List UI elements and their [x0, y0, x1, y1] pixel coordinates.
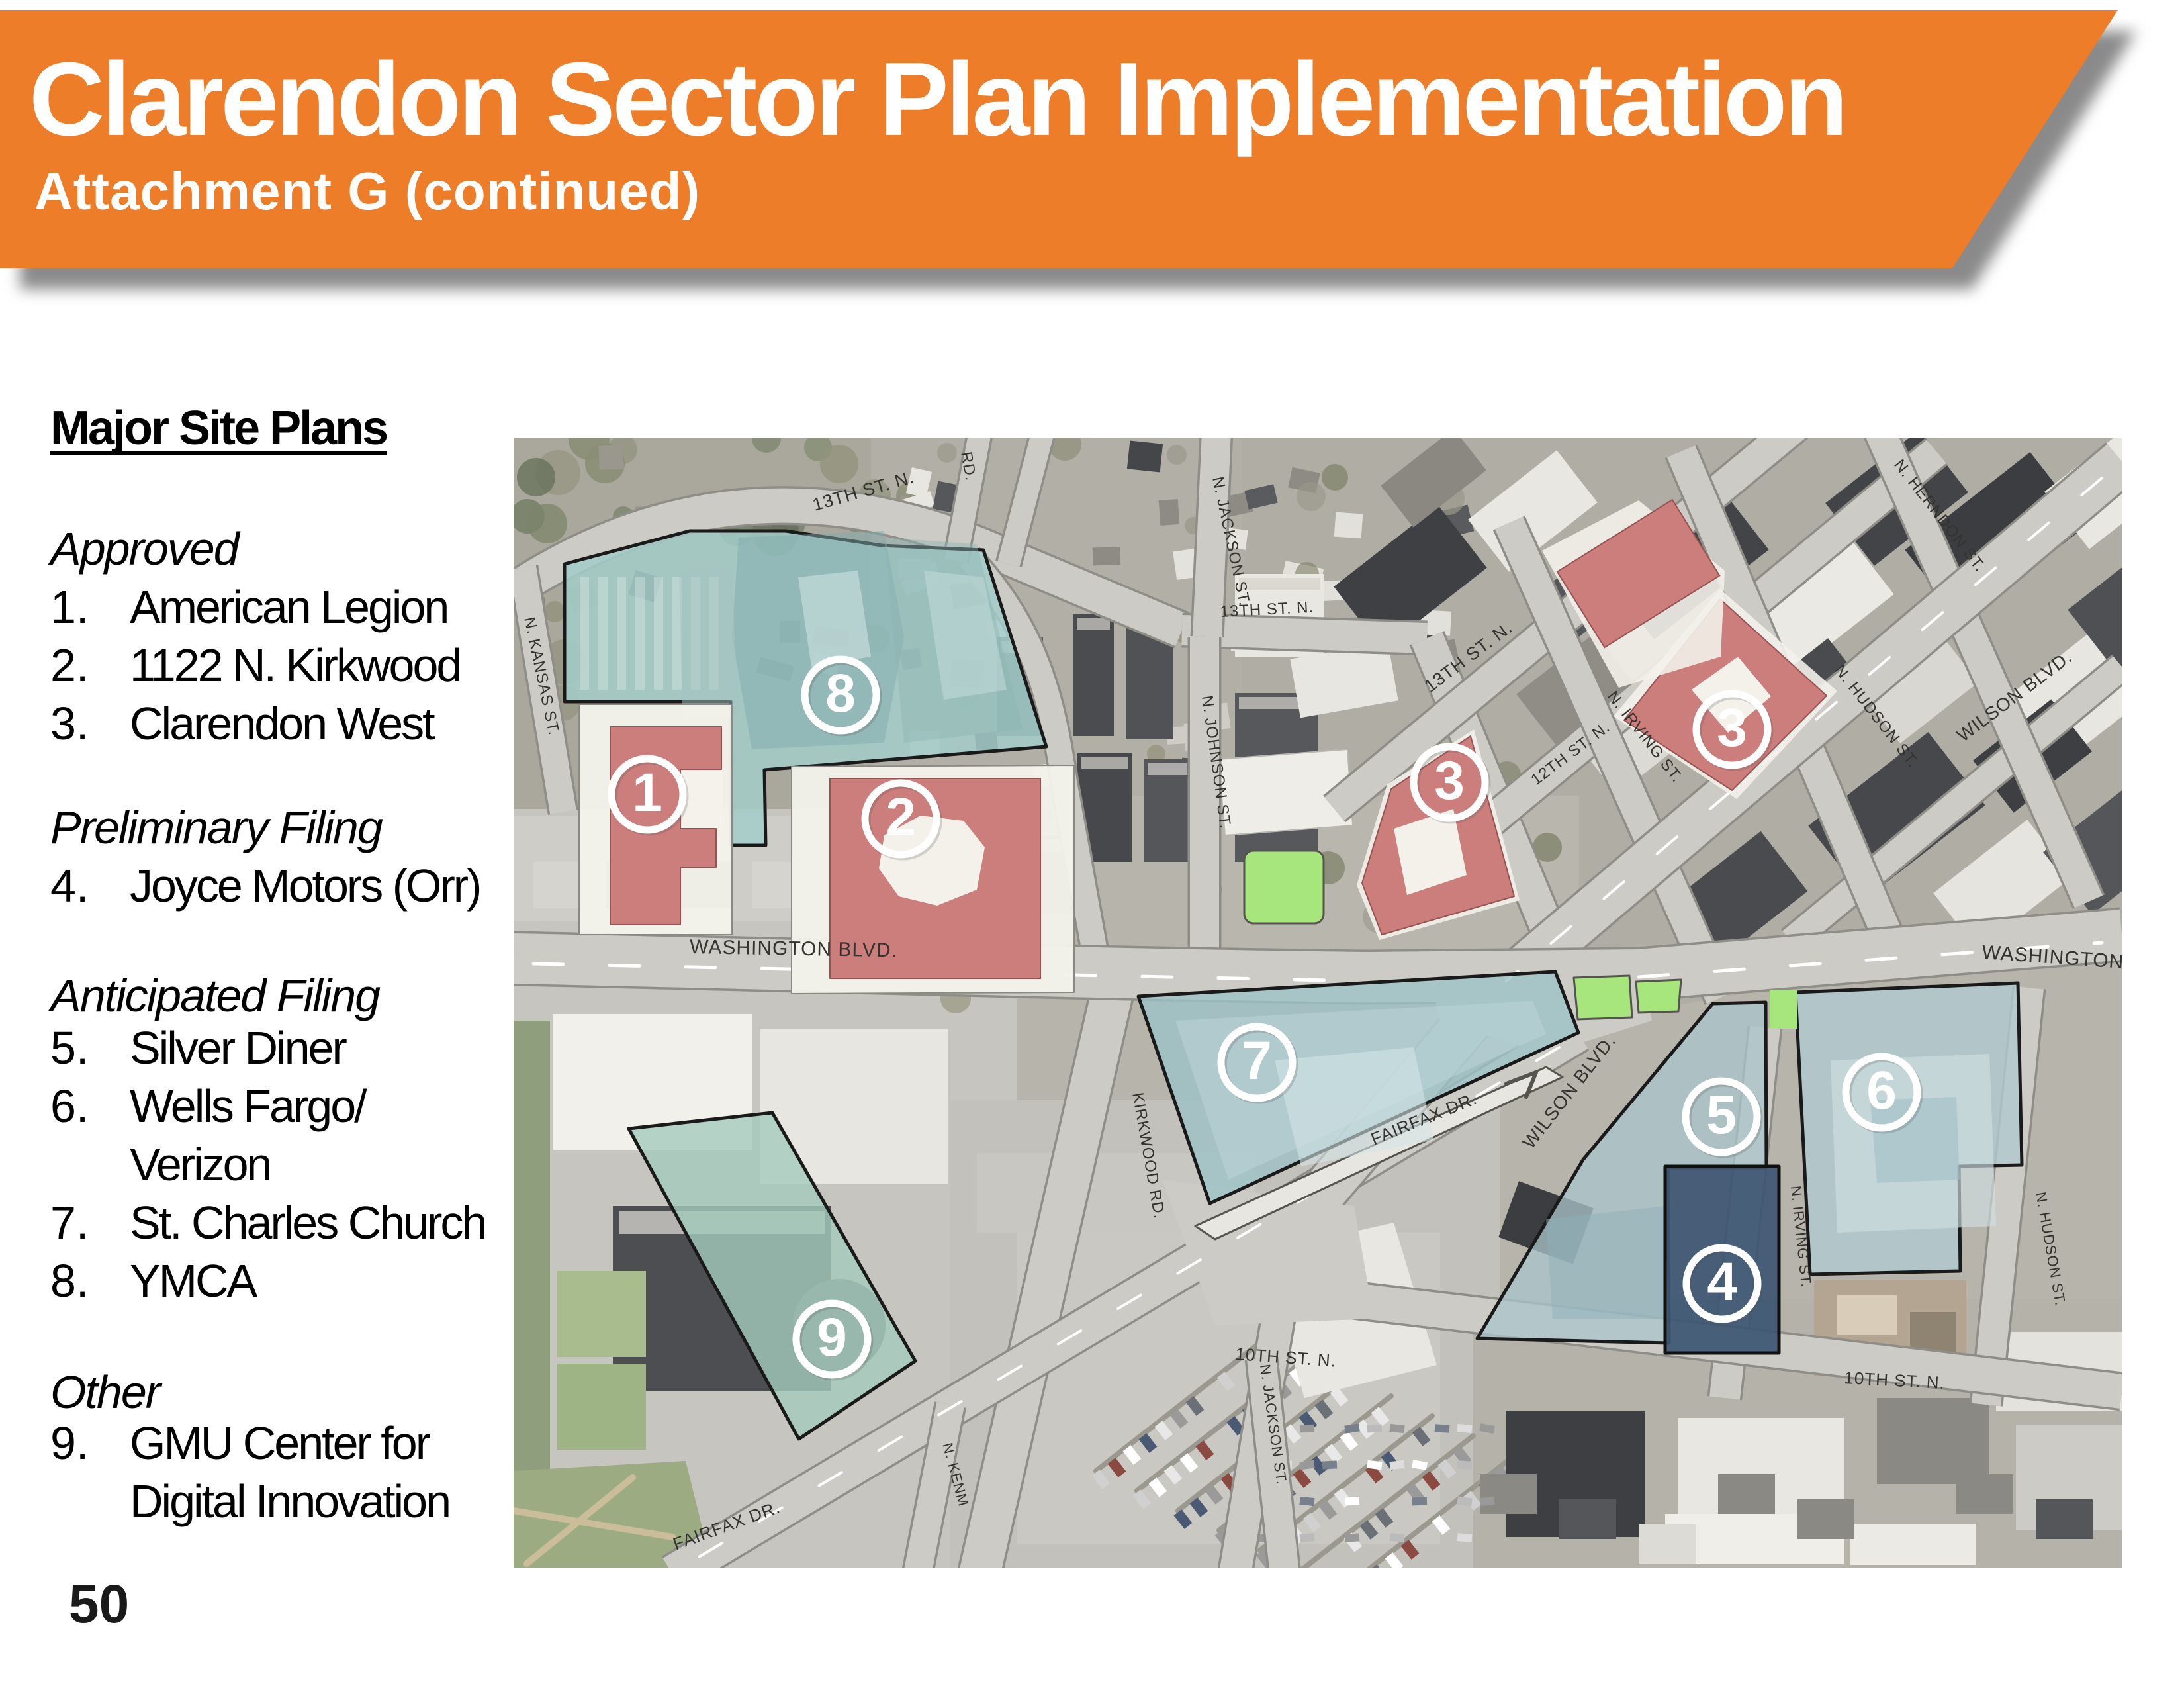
svg-text:Attachment G (continued): Attachment G (continued) [34, 162, 700, 220]
svg-text:5: 5 [1706, 1085, 1737, 1145]
svg-text:9: 9 [817, 1307, 847, 1368]
svg-text:Clarendon Sector Plan Implemen: Clarendon Sector Plan Implementation [29, 41, 1845, 158]
svg-text:2: 2 [886, 787, 916, 847]
svg-text:1: 1 [632, 763, 662, 823]
svg-text:3: 3 [1434, 751, 1465, 811]
svg-text:7: 7 [1242, 1031, 1272, 1091]
svg-text:WASHINGTON BLVD.: WASHINGTON BLVD. [690, 936, 897, 961]
svg-text:8: 8 [825, 663, 856, 724]
svg-text:6: 6 [1866, 1060, 1897, 1121]
svg-text:3: 3 [1717, 698, 1747, 758]
svg-text:4: 4 [1707, 1252, 1737, 1312]
